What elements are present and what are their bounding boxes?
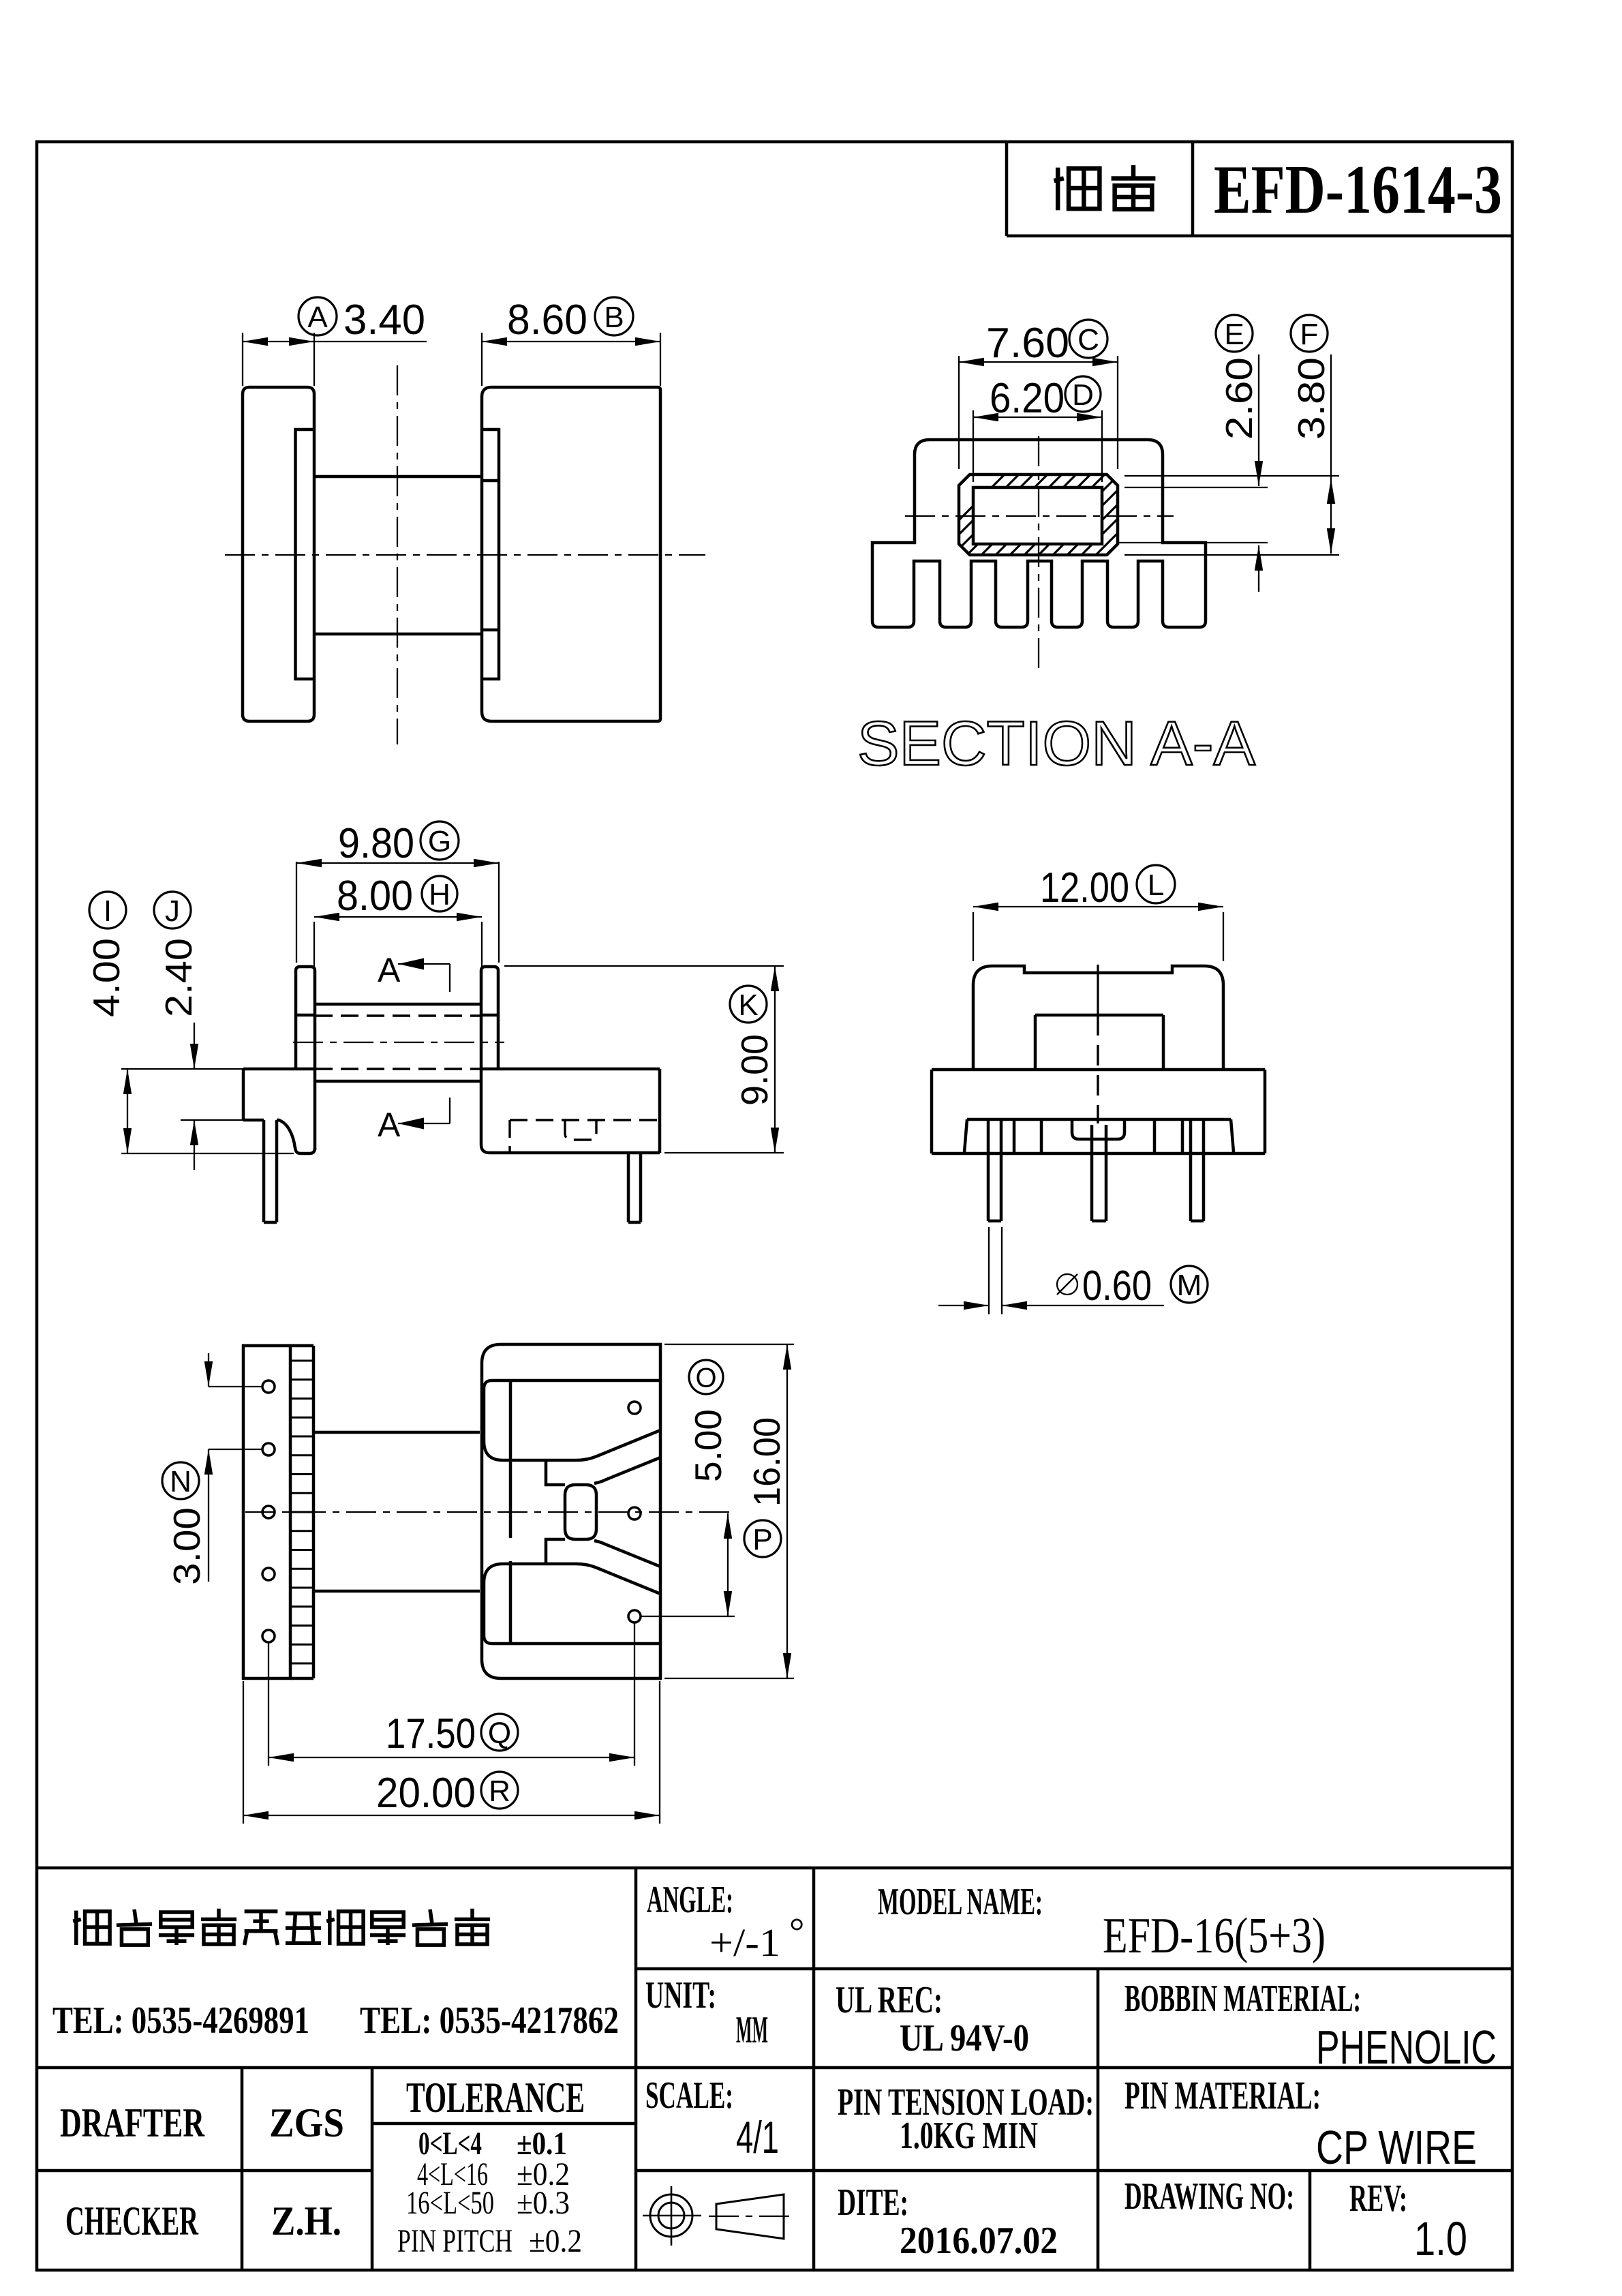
- svg-text:SECTION A-A: SECTION A-A: [857, 709, 1256, 779]
- svg-text:DITE:: DITE:: [838, 2181, 908, 2224]
- svg-text:1.0KG MIN: 1.0KG MIN: [900, 2115, 1038, 2157]
- svg-text:UL 94V-0: UL 94V-0: [900, 2017, 1029, 2059]
- svg-text:H: H: [429, 878, 450, 911]
- svg-text:Z.H.: Z.H.: [271, 2199, 341, 2244]
- svg-text:ZGS: ZGS: [269, 2100, 344, 2145]
- svg-text:K: K: [738, 988, 758, 1022]
- svg-text:A: A: [378, 951, 401, 989]
- svg-text:REV:: REV:: [1349, 2177, 1407, 2220]
- svg-text:L: L: [1148, 868, 1164, 902]
- svg-text:3.80: 3.80: [1290, 357, 1332, 440]
- svg-text:20.00: 20.00: [376, 1770, 476, 1817]
- svg-text:UNIT:: UNIT:: [645, 1974, 716, 2016]
- svg-text:9.00: 9.00: [733, 1034, 776, 1106]
- svg-text:2.60: 2.60: [1218, 357, 1260, 440]
- svg-text:MM: MM: [736, 2009, 768, 2051]
- svg-text:°: °: [789, 1911, 804, 1953]
- svg-text:8.60: 8.60: [507, 297, 587, 344]
- svg-text:TEL: 0535-4269891: TEL: 0535-4269891: [52, 1999, 309, 2042]
- svg-text:8.00: 8.00: [337, 873, 413, 920]
- svg-text:12.00: 12.00: [1040, 864, 1129, 911]
- svg-text:16.00: 16.00: [746, 1417, 788, 1507]
- svg-text:1.0: 1.0: [1414, 2212, 1467, 2265]
- svg-text:PHENOLIC: PHENOLIC: [1316, 2021, 1497, 2074]
- svg-text:CHECKER: CHECKER: [65, 2199, 198, 2244]
- svg-text:4/1: 4/1: [736, 2112, 779, 2162]
- svg-text:EFD-16(5+3): EFD-16(5+3): [1103, 1908, 1326, 1964]
- svg-text:P: P: [752, 1523, 772, 1556]
- svg-text:N: N: [170, 1465, 192, 1498]
- svg-text:EFD-1614-3: EFD-1614-3: [1214, 151, 1502, 228]
- svg-text:PIN PITCH: PIN PITCH: [397, 2223, 512, 2259]
- svg-text:17.50: 17.50: [386, 1710, 476, 1757]
- svg-text:E: E: [1224, 318, 1244, 351]
- svg-text:5.00: 5.00: [687, 1409, 729, 1482]
- svg-text:C: C: [1077, 323, 1099, 357]
- svg-text:R: R: [489, 1774, 510, 1808]
- svg-text:4.00: 4.00: [85, 938, 127, 1017]
- svg-text:M: M: [1177, 1269, 1202, 1302]
- svg-text:3.00: 3.00: [166, 1507, 208, 1585]
- svg-text:J: J: [165, 894, 180, 928]
- svg-text:O: O: [695, 1363, 716, 1393]
- svg-text:UL REC:: UL REC:: [836, 1979, 943, 2021]
- svg-text:9.80: 9.80: [338, 820, 414, 867]
- svg-text:6.20: 6.20: [990, 375, 1065, 422]
- svg-text:0.60: 0.60: [1082, 1263, 1152, 1310]
- svg-text:16<L<50: 16<L<50: [406, 2185, 494, 2221]
- svg-text:3.40: 3.40: [343, 297, 425, 344]
- svg-text:A: A: [307, 301, 328, 334]
- svg-text:TOLERANCE: TOLERANCE: [406, 2073, 585, 2121]
- svg-text:A: A: [378, 1106, 401, 1144]
- svg-text:BOBBIN MATERIAL:: BOBBIN MATERIAL:: [1124, 1978, 1361, 2020]
- svg-text:D: D: [1072, 378, 1094, 412]
- svg-text:F: F: [1300, 318, 1319, 351]
- svg-text:2016.07.02: 2016.07.02: [900, 2220, 1058, 2262]
- svg-text:±0.3: ±0.3: [517, 2185, 570, 2221]
- svg-text:MODEL NAME:: MODEL NAME:: [878, 1881, 1043, 1923]
- svg-text:±0.2: ±0.2: [529, 2223, 582, 2259]
- svg-text:I: I: [104, 894, 112, 928]
- svg-text:SCALE:: SCALE:: [645, 2074, 733, 2117]
- svg-text:DRAFTER: DRAFTER: [60, 2100, 204, 2145]
- svg-text:ANGLE:: ANGLE:: [647, 1879, 733, 1921]
- svg-text:G: G: [428, 825, 451, 858]
- svg-text:B: B: [604, 301, 624, 334]
- svg-text:DRAWING NO:: DRAWING NO:: [1124, 2175, 1294, 2218]
- svg-text:CP WIRE: CP WIRE: [1316, 2121, 1477, 2174]
- svg-text:2.40: 2.40: [157, 938, 200, 1017]
- svg-text:TEL: 0535-4217862: TEL: 0535-4217862: [360, 1999, 619, 2042]
- svg-text:7.60: 7.60: [986, 320, 1069, 367]
- svg-text:PIN MATERIAL:: PIN MATERIAL:: [1124, 2073, 1321, 2117]
- svg-text:Q: Q: [488, 1717, 511, 1750]
- svg-text:+/-1: +/-1: [709, 1920, 780, 1965]
